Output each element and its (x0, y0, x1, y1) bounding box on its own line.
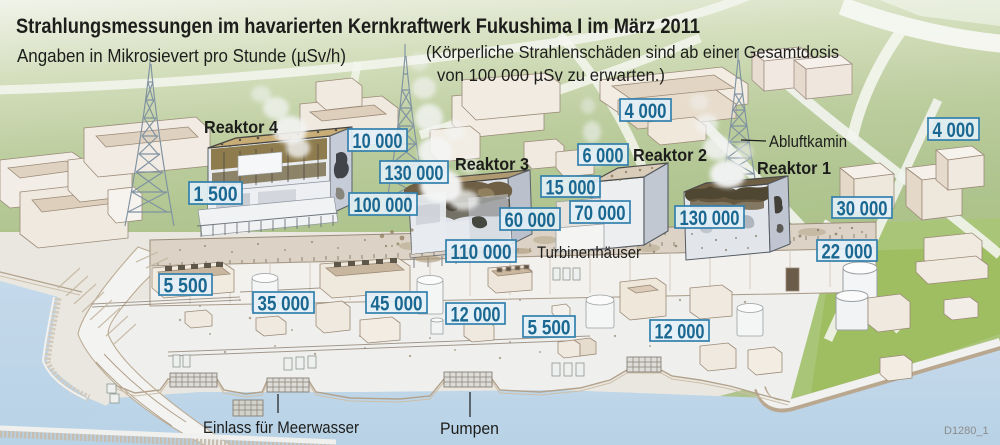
svg-text:D1280_1: D1280_1 (944, 425, 989, 437)
svg-text:Reaktor 3: Reaktor 3 (455, 154, 529, 174)
svg-text:45 000: 45 000 (371, 291, 423, 315)
svg-text:Turbinenhäuser: Turbinenhäuser (537, 243, 641, 262)
svg-text:Einlass für Meerwasser: Einlass für Meerwasser (203, 418, 359, 437)
svg-text:130 000: 130 000 (385, 161, 444, 185)
svg-text:von 100 000 µSv zu erwarten.): von 100 000 µSv zu erwarten.) (437, 65, 665, 85)
svg-text:4 000: 4 000 (933, 118, 975, 142)
svg-text:130 000: 130 000 (680, 206, 740, 230)
svg-text:Abluftkamin: Abluftkamin (769, 132, 847, 151)
svg-text:12 000: 12 000 (451, 302, 501, 326)
svg-text:Pumpen: Pumpen (440, 419, 499, 438)
svg-text:35 000: 35 000 (258, 291, 310, 315)
svg-text:12 000: 12 000 (655, 319, 705, 343)
svg-text:110 000: 110 000 (451, 240, 512, 264)
svg-text:70 000: 70 000 (575, 201, 626, 225)
svg-text:Reaktor 2: Reaktor 2 (633, 145, 707, 165)
svg-text:Angaben in Mikrosievert pro St: Angaben in Mikrosievert pro Stunde (µSv/… (17, 46, 346, 66)
svg-text:(Körperliche Strahlenschäden s: (Körperliche Strahlenschäden sind ab ein… (426, 42, 839, 62)
svg-text:Reaktor 4: Reaktor 4 (204, 117, 278, 137)
svg-text:30 000: 30 000 (837, 196, 888, 220)
svg-text:6 000: 6 000 (583, 143, 624, 167)
svg-text:22 000: 22 000 (822, 239, 873, 263)
svg-text:5 500: 5 500 (164, 273, 208, 297)
svg-text:4 000: 4 000 (625, 99, 667, 123)
svg-text:5 500: 5 500 (528, 315, 571, 339)
svg-text:60 000: 60 000 (505, 208, 556, 232)
svg-text:Strahlungsmessungen im havarie: Strahlungsmessungen im havarierten Kernk… (16, 15, 700, 38)
svg-text:1 500: 1 500 (194, 182, 238, 206)
svg-text:100 000: 100 000 (354, 193, 413, 217)
svg-text:10 000: 10 000 (353, 129, 403, 153)
svg-text:15 000: 15 000 (546, 175, 596, 199)
svg-text:Reaktor 1: Reaktor 1 (757, 158, 831, 178)
